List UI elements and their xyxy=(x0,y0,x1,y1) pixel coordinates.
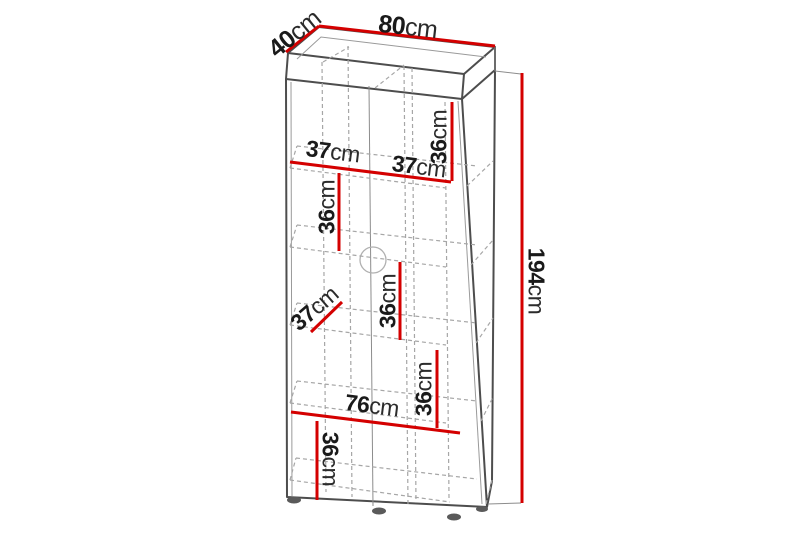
door-gap-line xyxy=(369,86,373,506)
dim-label-bottom-left-36: 36cm xyxy=(318,432,344,486)
dim-label-lower-right-36: 36cm xyxy=(410,362,436,416)
cabinet-foot xyxy=(447,514,461,521)
right-side-face xyxy=(487,70,495,507)
dim-label-upper-left-36: 36cm xyxy=(313,180,339,234)
right-door-edge xyxy=(458,101,482,504)
hidden-diagonal xyxy=(375,65,404,88)
hidden-vertical xyxy=(412,68,416,503)
dim-label-middle-36: 36cm xyxy=(374,274,400,328)
hidden-vertical xyxy=(404,66,408,505)
cabinet-dimension-diagram: 40cm 80cm 194cm 37cm 37cm 36cm 36cm 36cm… xyxy=(0,0,800,533)
hidden-vertical xyxy=(322,62,326,492)
dim-label-top-right-36: 36cm xyxy=(425,110,451,164)
cabinet-foot xyxy=(372,508,386,515)
extension-line xyxy=(495,71,521,74)
cabinet-foot xyxy=(476,506,488,512)
dim-label-top-left-37: 37cm xyxy=(304,135,361,167)
dim-label-76: 76cm xyxy=(343,389,400,421)
diagram-canvas: 40cm 80cm 194cm 37cm 37cm 36cm 36cm 36cm… xyxy=(0,0,800,533)
left-door-edge xyxy=(291,82,292,496)
extension-line xyxy=(488,503,521,504)
knob-circle xyxy=(360,247,386,273)
dim-label-height: 194cm xyxy=(524,248,550,315)
dim-label-width: 80cm xyxy=(377,10,439,45)
cabinet-foot xyxy=(287,497,301,504)
hidden-vertical xyxy=(348,46,352,497)
top-front-rim xyxy=(286,53,464,99)
